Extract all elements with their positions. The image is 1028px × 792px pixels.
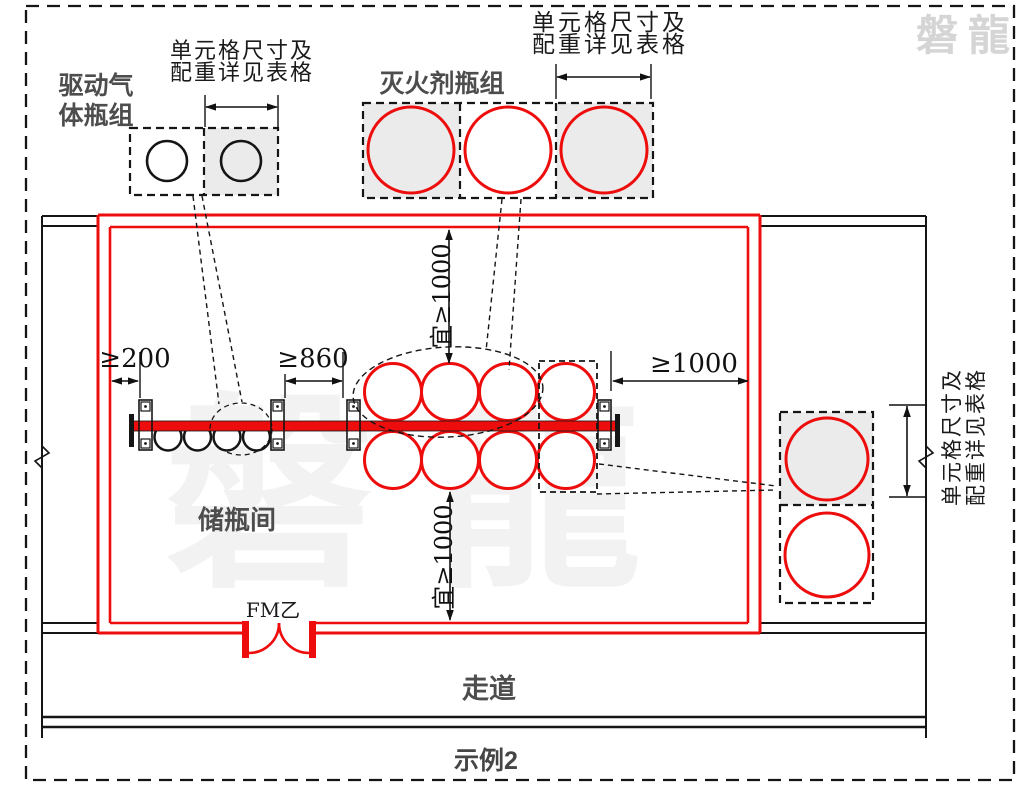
agent-group-label: 灭火剂瓶组 — [376, 64, 508, 100]
detail-box-driving-gas — [130, 128, 278, 195]
example-caption: 示例2 — [441, 741, 531, 777]
driving-gas-group-label: 驱动气 体瓶组 — [53, 71, 139, 131]
agent-cylinder-symbol — [465, 107, 551, 193]
dim-860-text: ≥860 — [277, 344, 349, 374]
detail-box-right — [780, 412, 873, 603]
cell-note-line2: 配重详见表格 — [520, 34, 700, 56]
cell-note-line1: 单元格尺寸及 — [520, 12, 700, 34]
rail-end-cap-left — [129, 414, 134, 447]
storage-room-label: 储瓶间 — [194, 500, 280, 537]
door-jamb-left — [242, 621, 249, 658]
cell-note-line1: 单元格尺寸及 — [152, 41, 332, 63]
leader-right-1 — [599, 464, 776, 486]
detail-box-agent — [363, 103, 653, 198]
dim-1000-text: ≥1000 — [650, 349, 726, 379]
leader-agent-1 — [486, 199, 502, 351]
cell-note-top-middle: 单元格尺寸及 配重详见表格 — [520, 12, 700, 56]
manifold-rail — [133, 421, 618, 431]
agent-bottles-bottom-row — [365, 432, 595, 489]
cell-note-line1: 单元格尺寸及 — [940, 352, 964, 522]
fire-door-label: FM乙 — [243, 594, 303, 623]
cell-note-right: 单元格尺寸及 配重详见表格 — [940, 352, 988, 522]
drawing-canvas: 磐龍 磐龍 — [0, 0, 1028, 792]
detail-dim-top-middle — [556, 64, 651, 99]
cell-note-line2: 配重详见表格 — [152, 63, 332, 85]
cell-note-top-left: 单元格尺寸及 配重详见表格 — [152, 41, 332, 85]
door-leaf-right — [279, 623, 309, 653]
dim-aisle-bottom-text: 宜≥1000 — [424, 487, 450, 627]
fire-door — [242, 621, 316, 658]
door-jamb-right — [309, 621, 316, 658]
dim-200-text: ≥200 — [99, 344, 171, 374]
agent-bottles-top-row — [365, 364, 595, 421]
driving-gas-cylinder-symbol — [147, 141, 187, 181]
corridor-label: 走道 — [449, 667, 529, 706]
dim-aisle-top-text: 宜≥1000 — [422, 226, 448, 366]
detail-dim-top-left — [205, 95, 278, 127]
cell-note-line2: 配重详见表格 — [964, 352, 988, 522]
rail-end-cap-right — [615, 414, 620, 447]
leader-agent-2 — [509, 199, 521, 370]
agent-cylinder-symbol — [785, 513, 869, 597]
door-leaf-left — [249, 623, 279, 653]
detail-dim-right — [889, 405, 925, 497]
